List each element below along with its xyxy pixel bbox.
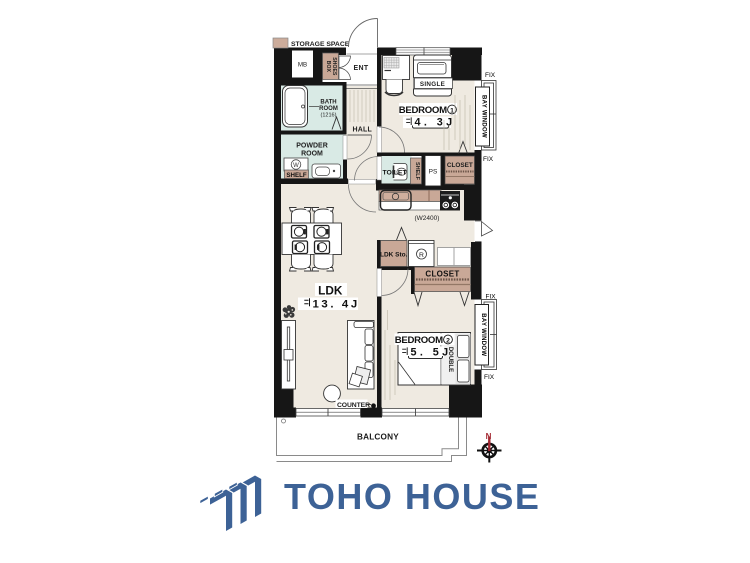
svg-text:1: 1 — [450, 108, 454, 115]
svg-text:HALL: HALL — [353, 127, 373, 134]
svg-text:2: 2 — [446, 338, 450, 345]
svg-text:PS: PS — [429, 169, 438, 176]
svg-text:4. 3J: 4. 3J — [415, 116, 456, 128]
svg-text:COUNTER: COUNTER — [337, 402, 370, 409]
svg-text:BEDROOM: BEDROOM — [395, 335, 443, 346]
svg-text:FIX: FIX — [486, 294, 497, 301]
svg-text:LDK: LDK — [318, 283, 343, 297]
svg-text:FIX: FIX — [484, 374, 495, 381]
svg-text:SHELF: SHELF — [414, 162, 420, 181]
svg-text:BEDROOM: BEDROOM — [399, 105, 447, 116]
svg-text:POWDER: POWDER — [296, 143, 328, 150]
svg-text:TOILET: TOILET — [383, 170, 408, 177]
svg-text:STORAGE SPACE: STORAGE SPACE — [291, 41, 350, 48]
svg-text:BALCONY: BALCONY — [357, 433, 399, 442]
svg-text:(W2400): (W2400) — [415, 215, 440, 222]
svg-text:ROOM: ROOM — [319, 106, 338, 112]
svg-text:5. 5J: 5. 5J — [411, 347, 452, 359]
svg-text:TOHO HOUSE: TOHO HOUSE — [284, 476, 540, 517]
svg-text:CLOSET: CLOSET — [447, 162, 473, 169]
svg-text:BOX: BOX — [325, 61, 331, 73]
svg-text:13. 4J: 13. 4J — [313, 299, 360, 311]
svg-text:BAY WINDOW: BAY WINDOW — [481, 95, 487, 138]
svg-text:SHOES: SHOES — [331, 57, 337, 76]
svg-text:W: W — [293, 163, 299, 169]
svg-text:FIX: FIX — [483, 156, 494, 163]
svg-text:R: R — [419, 252, 424, 259]
svg-text:SINGLE: SINGLE — [420, 81, 445, 88]
svg-text:BAY WINDOW: BAY WINDOW — [480, 313, 486, 356]
svg-text:ROOM: ROOM — [301, 151, 323, 158]
svg-text:LDK Sto.: LDK Sto. — [380, 252, 408, 259]
svg-text:BATH: BATH — [320, 100, 336, 106]
svg-text:(1216): (1216) — [321, 113, 337, 119]
svg-text:MB: MB — [298, 62, 307, 69]
svg-text:SHELF: SHELF — [286, 172, 307, 179]
svg-text:FIX: FIX — [485, 72, 496, 79]
svg-text:ENT: ENT — [354, 65, 369, 72]
svg-text:N: N — [486, 432, 492, 441]
svg-text:CLOSET: CLOSET — [425, 270, 459, 279]
